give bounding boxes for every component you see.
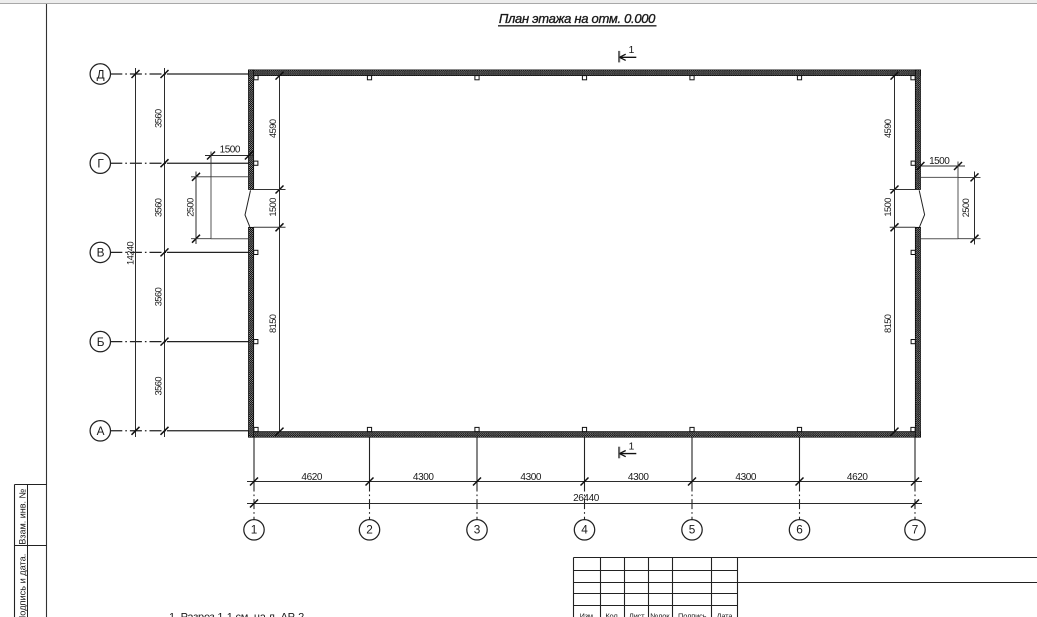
svg-text:4620: 4620 (301, 472, 322, 483)
svg-text:4620: 4620 (847, 472, 868, 483)
svg-text:Кол.: Кол. (605, 611, 619, 617)
svg-text:8150: 8150 (883, 314, 893, 333)
svg-text:4300: 4300 (520, 472, 541, 483)
svg-text:Лист: Лист (629, 611, 645, 617)
svg-text:В: В (97, 246, 105, 260)
svg-text:3560: 3560 (153, 198, 163, 217)
svg-text:1: 1 (251, 523, 258, 537)
svg-text:4300: 4300 (628, 472, 649, 483)
svg-text:Подпись и дата.: Подпись и дата. (17, 554, 27, 617)
svg-text:26440: 26440 (573, 493, 600, 504)
svg-text:1: 1 (628, 44, 634, 56)
svg-text:4: 4 (581, 523, 588, 537)
svg-text:4590: 4590 (883, 119, 893, 138)
svg-text:2: 2 (366, 523, 373, 537)
svg-text:А: А (97, 424, 105, 438)
svg-text:3560: 3560 (153, 377, 163, 396)
svg-text:4590: 4590 (268, 119, 278, 138)
svg-text:1500: 1500 (883, 198, 893, 217)
svg-text:4300: 4300 (735, 472, 756, 483)
svg-text:6: 6 (796, 523, 803, 537)
svg-text:5: 5 (689, 523, 696, 537)
svg-text:3560: 3560 (153, 109, 163, 128)
svg-text:Д: Д (97, 67, 105, 81)
svg-text:Дата: Дата (716, 611, 733, 617)
svg-text:Подпись: Подпись (678, 611, 707, 617)
svg-text:2500: 2500 (186, 198, 196, 217)
svg-text:№док.: №док. (650, 611, 671, 617)
svg-text:8150: 8150 (268, 314, 278, 333)
svg-text:1: 1 (628, 441, 634, 453)
svg-text:1500: 1500 (220, 145, 241, 156)
svg-text:3560: 3560 (153, 287, 163, 306)
svg-text:Б: Б (97, 335, 105, 349)
svg-text:Взам. инв. №: Взам. инв. № (17, 488, 27, 544)
svg-text:Г: Г (97, 157, 104, 171)
svg-text:Изм.: Изм. (579, 611, 594, 617)
svg-text:2500: 2500 (961, 198, 971, 217)
svg-text:7: 7 (912, 523, 919, 537)
svg-text:14240: 14240 (126, 241, 136, 264)
svg-text:1500: 1500 (268, 198, 278, 217)
svg-text:3: 3 (474, 523, 481, 537)
svg-text:1. Разрез 1-1 см. на л. АР-2: 1. Разрез 1-1 см. на л. АР-2 (169, 612, 304, 617)
svg-text:4300: 4300 (413, 472, 434, 483)
svg-text:1500: 1500 (929, 156, 950, 167)
svg-text:План этажа на отм. 0.000: План этажа на отм. 0.000 (499, 11, 656, 26)
